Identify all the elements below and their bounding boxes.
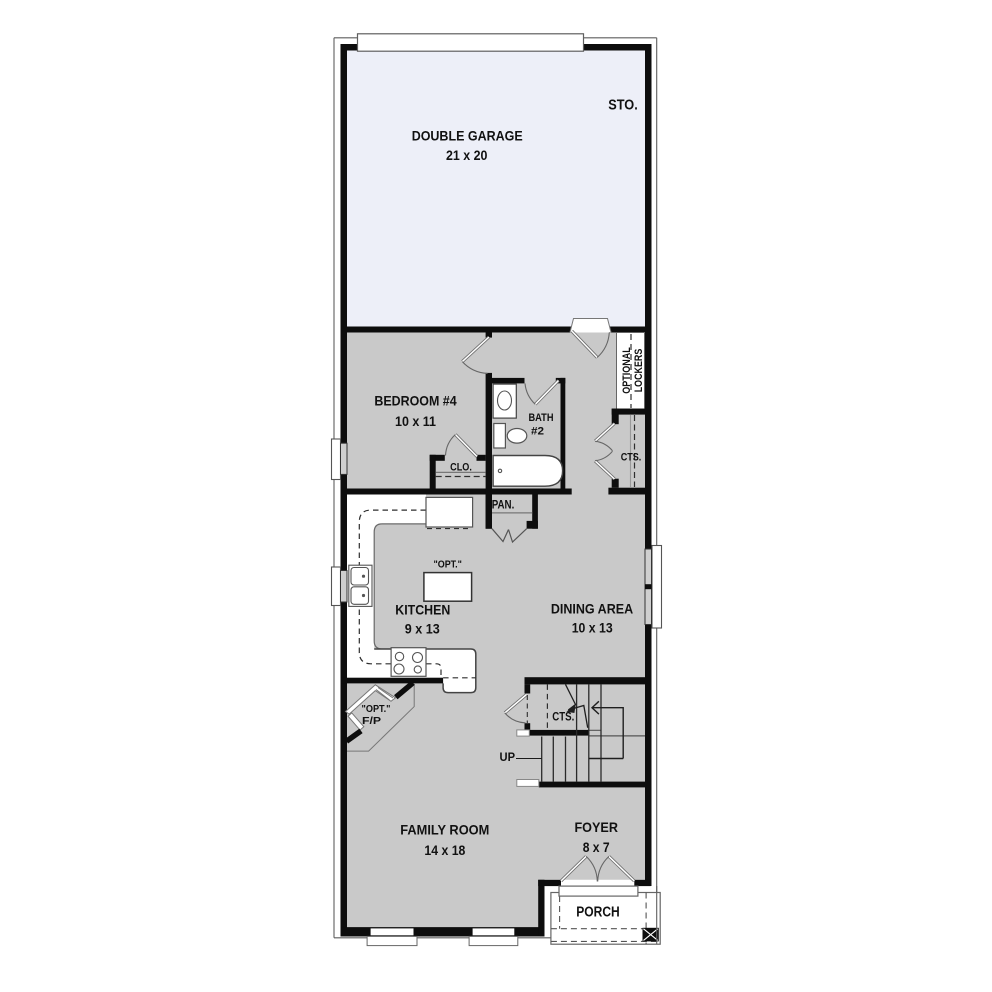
svg-text:9 x 13: 9 x 13 <box>405 621 440 636</box>
svg-text:"OPT.": "OPT." <box>362 703 391 715</box>
svg-text:#2: #2 <box>531 426 544 438</box>
svg-text:FOYER: FOYER <box>574 819 618 835</box>
svg-text:LOCKERS: LOCKERS <box>633 349 645 393</box>
svg-text:"OPT.": "OPT." <box>433 559 462 571</box>
svg-text:8 x 7: 8 x 7 <box>583 840 610 855</box>
svg-text:PAN.: PAN. <box>492 499 515 511</box>
svg-text:OPTIONAL: OPTIONAL <box>621 347 633 394</box>
svg-text:CLO.: CLO. <box>450 462 472 474</box>
svg-text:FAMILY ROOM: FAMILY ROOM <box>400 822 489 838</box>
svg-text:DINING AREA: DINING AREA <box>551 601 633 617</box>
svg-text:10 x 11: 10 x 11 <box>395 414 436 429</box>
svg-text:10 x 13: 10 x 13 <box>572 621 613 636</box>
svg-text:21 x 20: 21 x 20 <box>446 148 488 163</box>
svg-text:14 x 18: 14 x 18 <box>424 843 465 858</box>
svg-text:F/P: F/P <box>362 715 381 727</box>
svg-text:PORCH: PORCH <box>576 905 620 921</box>
svg-text:STO.: STO. <box>608 98 638 114</box>
svg-text:CTS.: CTS. <box>552 711 574 723</box>
svg-text:BATH: BATH <box>529 412 554 424</box>
svg-text:CTS.: CTS. <box>621 451 642 463</box>
svg-text:DOUBLE GARAGE: DOUBLE GARAGE <box>412 128 523 144</box>
svg-text:KITCHEN: KITCHEN <box>395 602 450 618</box>
svg-text:UP: UP <box>500 750 516 764</box>
svg-text:BEDROOM #4: BEDROOM #4 <box>374 392 456 408</box>
